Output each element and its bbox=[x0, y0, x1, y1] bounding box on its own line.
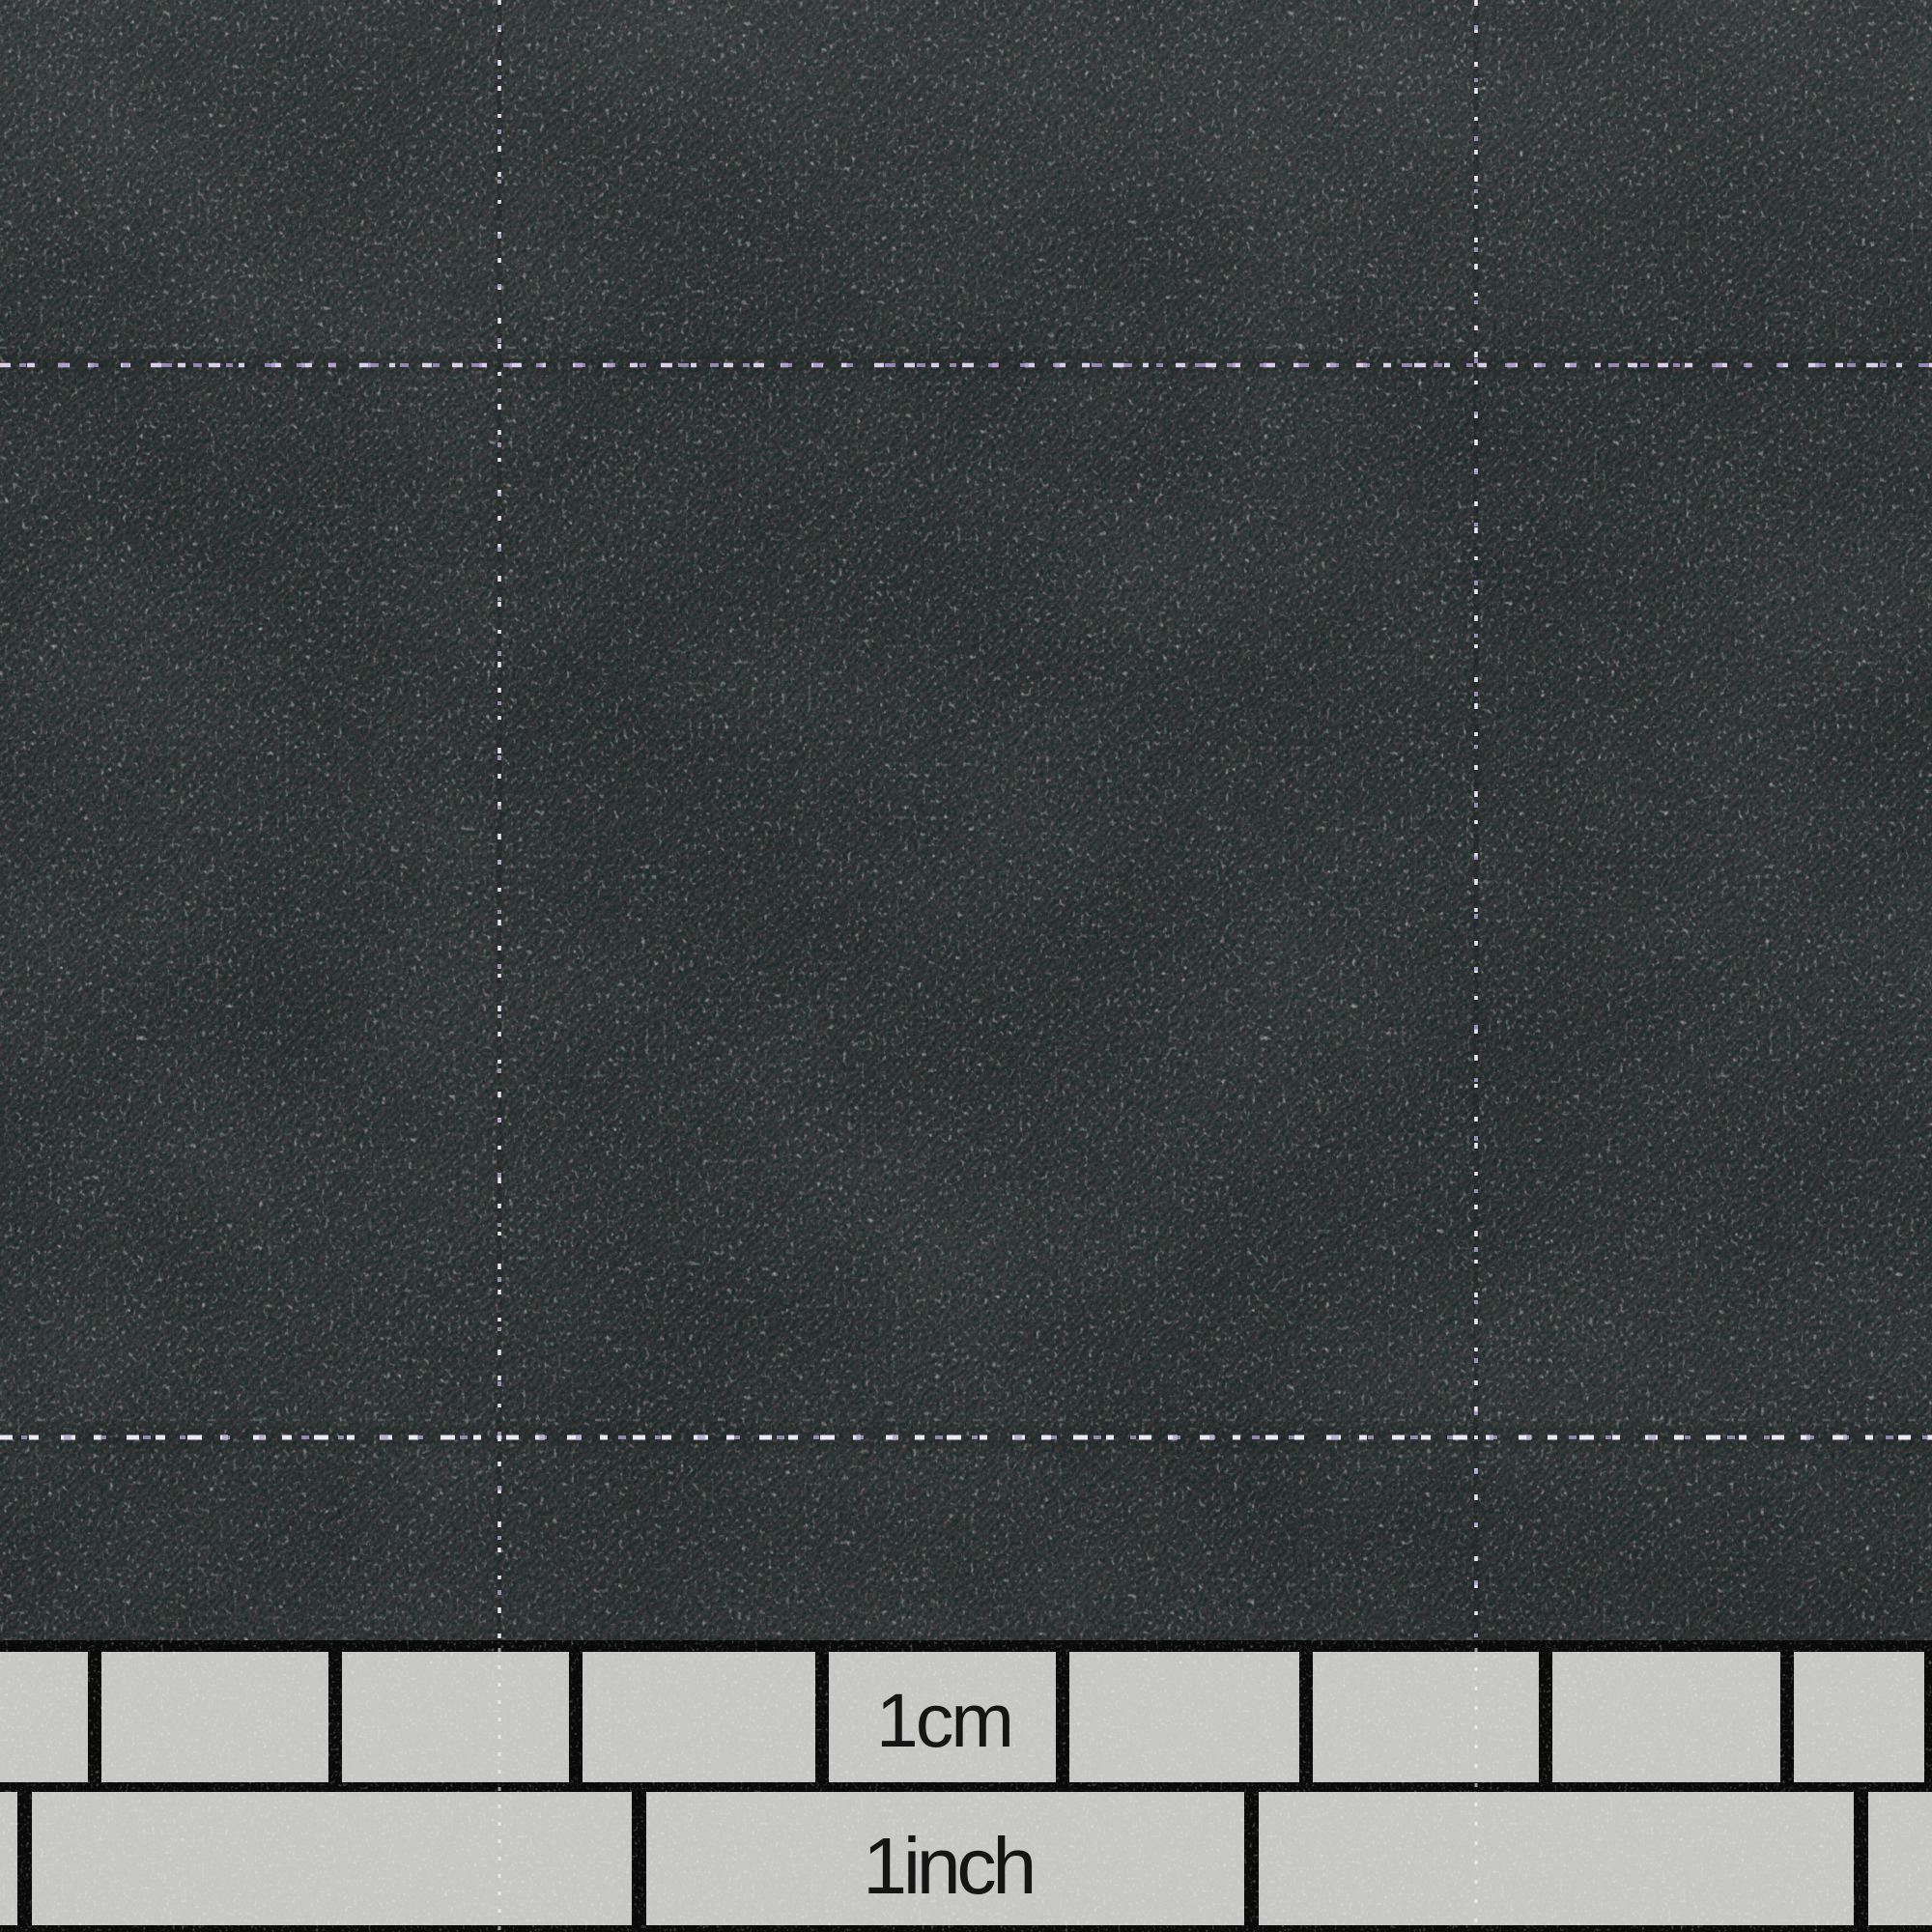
svg-text:1inch: 1inch bbox=[863, 1821, 1033, 1911]
svg-text:1cm: 1cm bbox=[876, 1677, 1011, 1763]
